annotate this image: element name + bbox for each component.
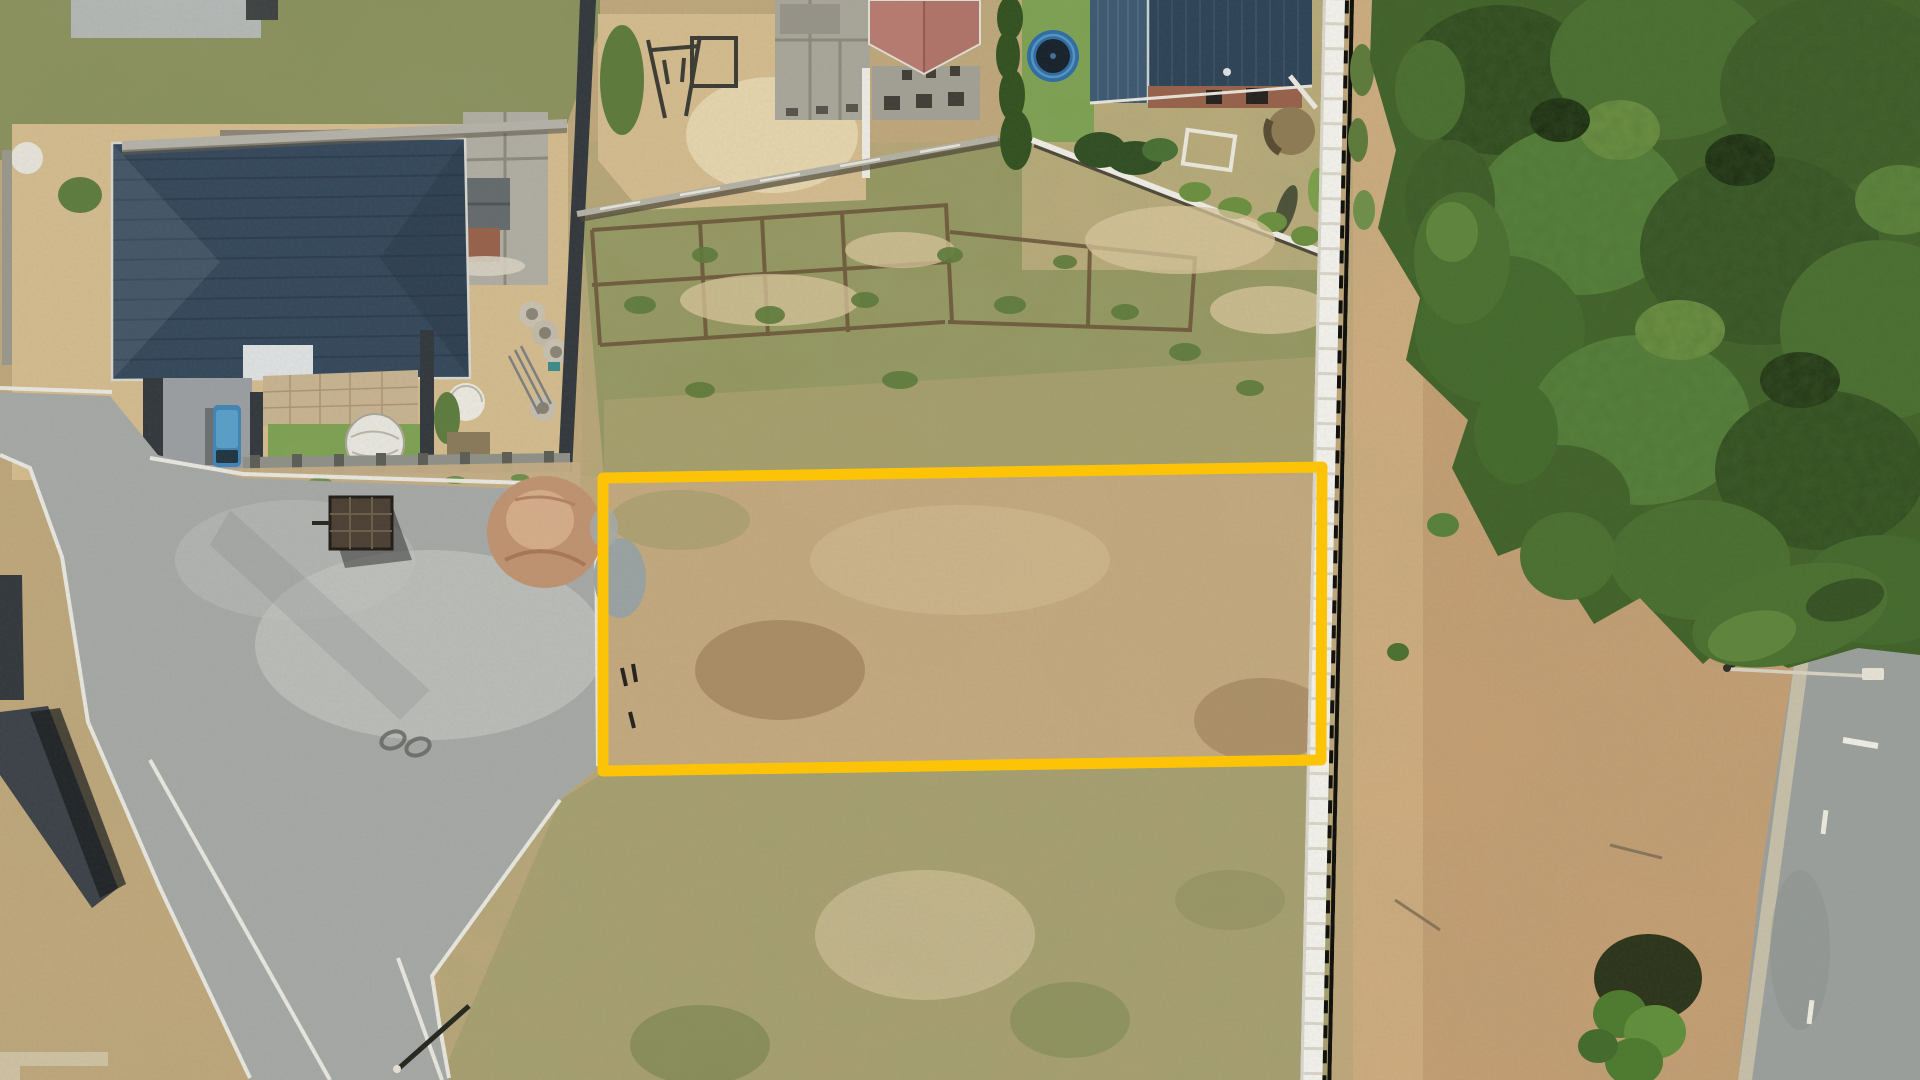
aerial-photograph <box>0 0 1920 1080</box>
aerial-photo-stage <box>0 0 1920 1080</box>
photo-grain <box>0 0 1920 1080</box>
